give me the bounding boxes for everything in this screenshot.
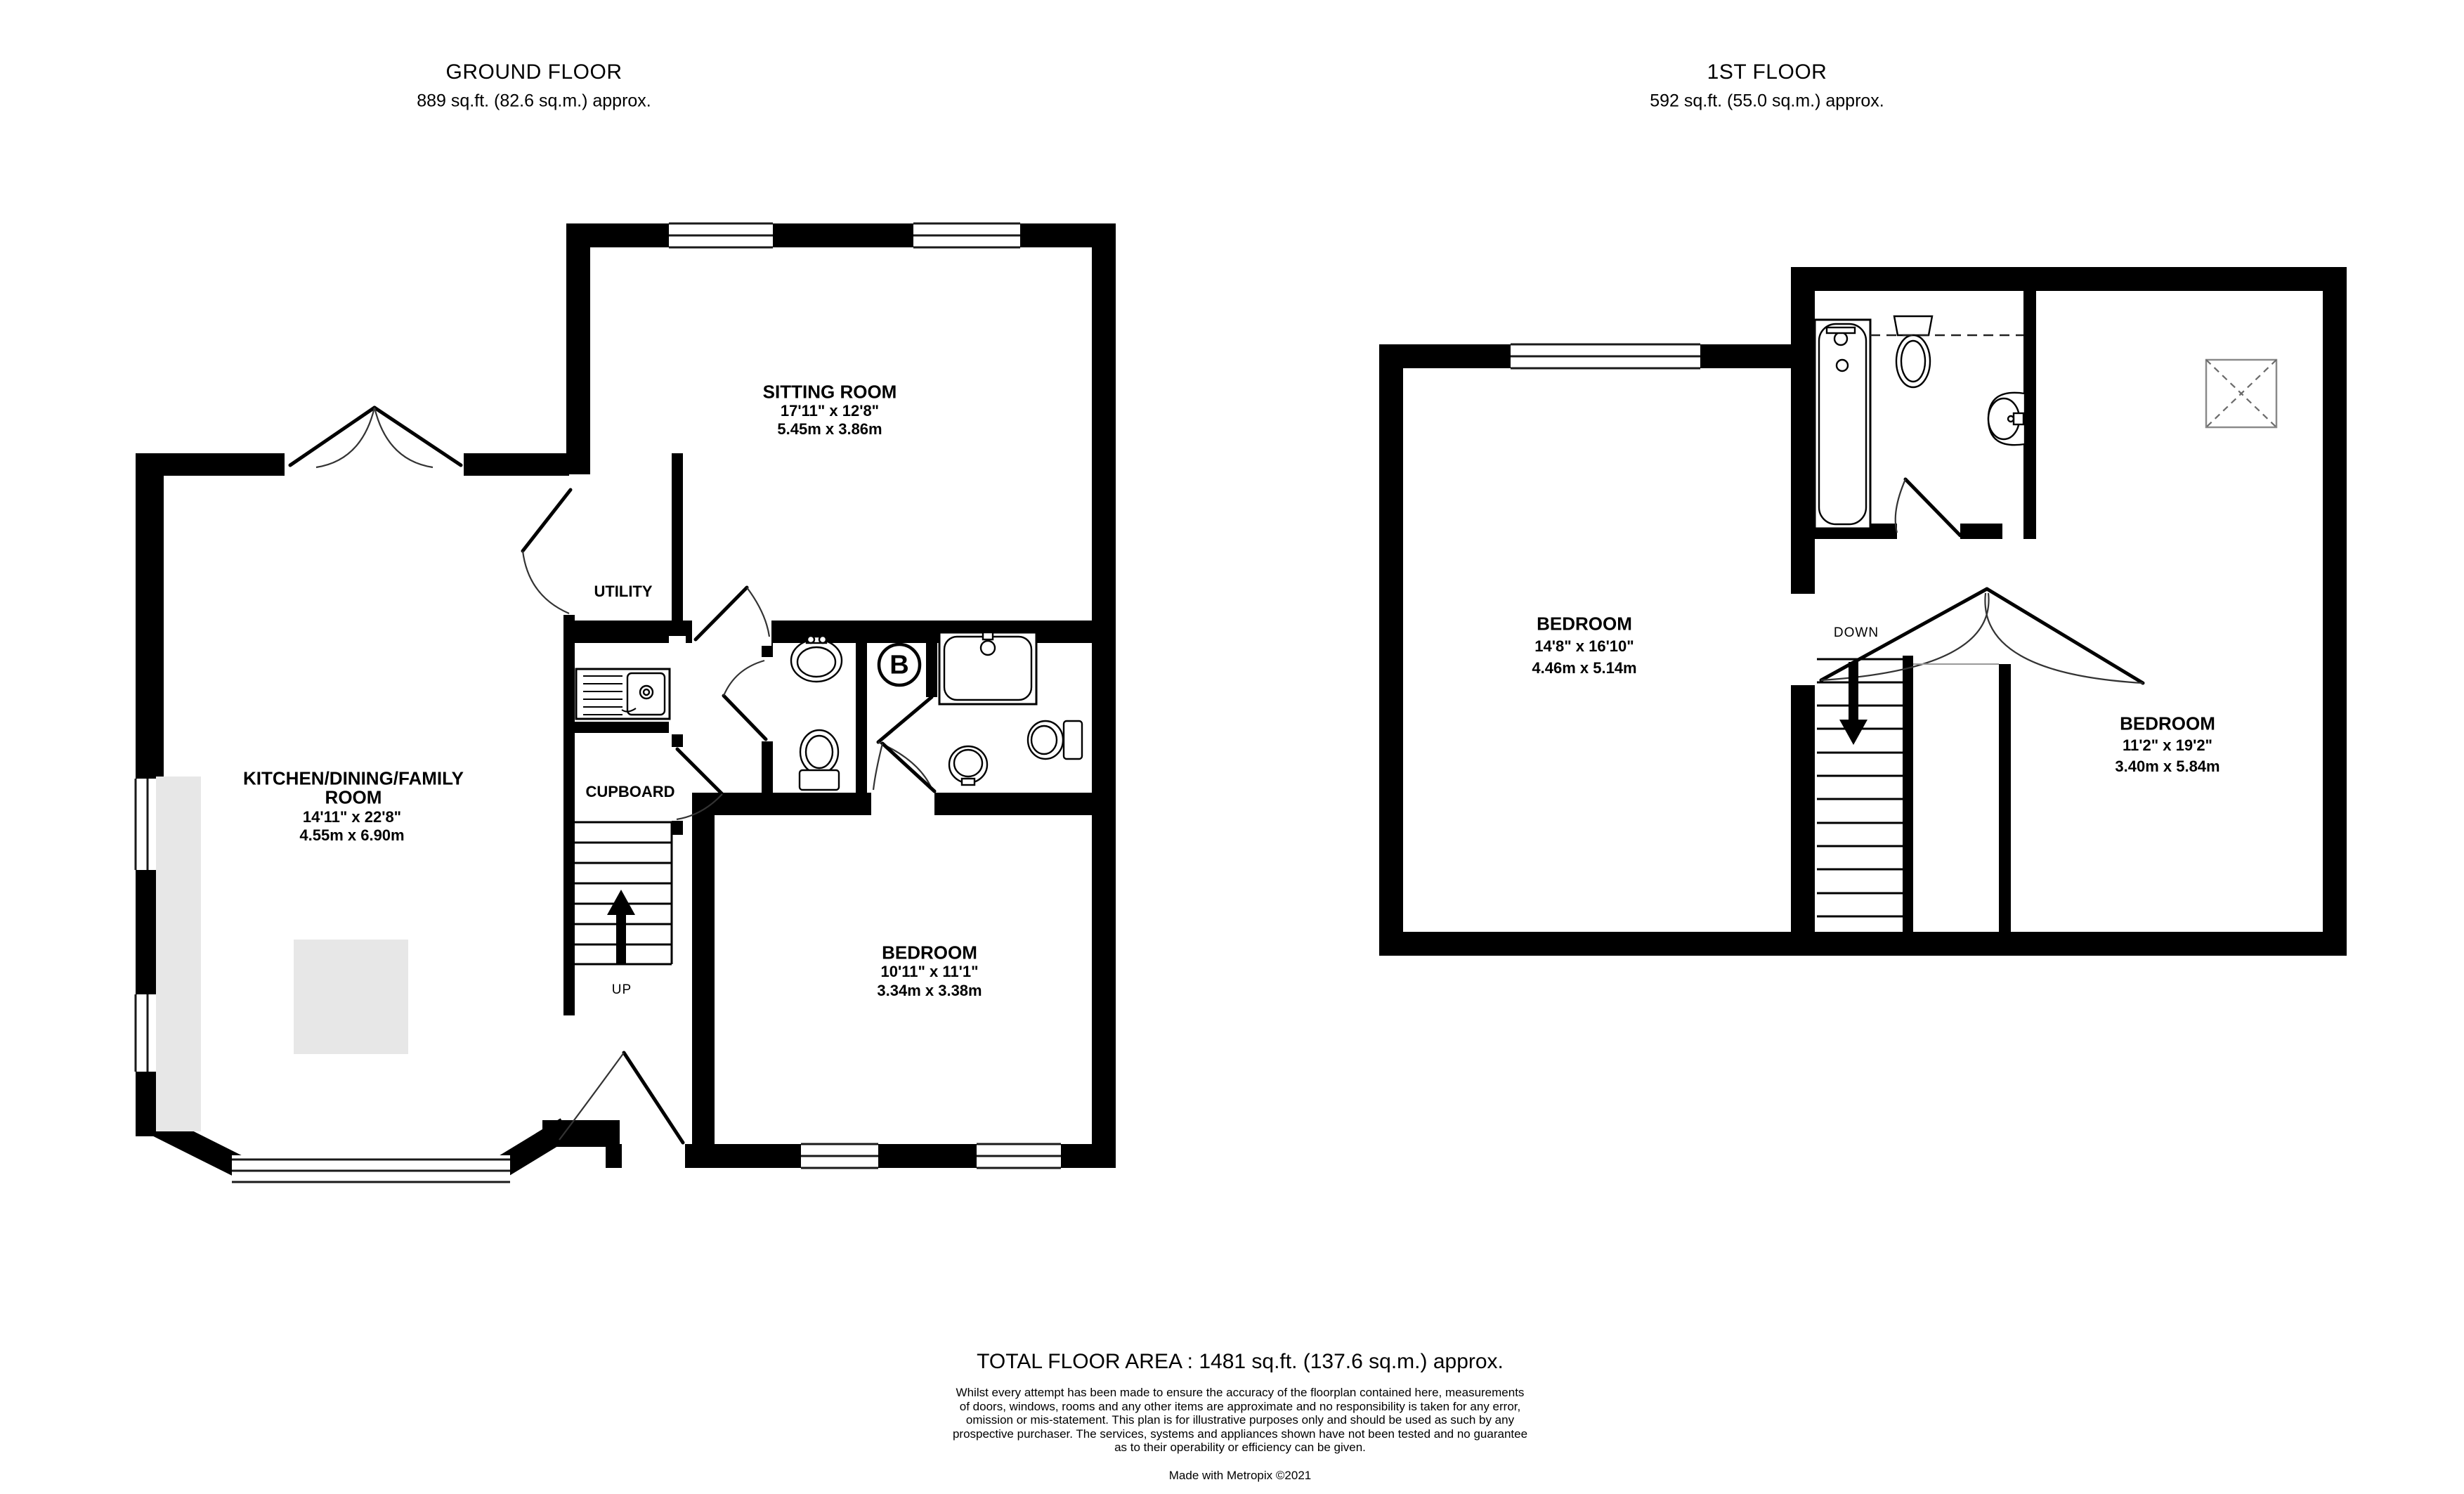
- sitting-room-dims-m: 5.45m x 3.86m: [777, 420, 882, 439]
- window-icon: [669, 219, 773, 252]
- window-icon: [801, 1140, 878, 1172]
- utility-label: UTILITY: [594, 583, 652, 601]
- ff-bedroom1-dims-m: 4.46m x 5.14m: [1532, 659, 1636, 677]
- window-icon: [977, 1140, 1061, 1172]
- utility-sink-icon: [576, 669, 670, 719]
- metropix-credit: Made with Metropix ©2021: [1169, 1469, 1311, 1483]
- ground-floor-subtitle: 889 sq.ft. (82.6 sq.m.) approx.: [417, 91, 651, 112]
- rooflight-icon: [2206, 360, 2276, 427]
- bath-basin-icon: [949, 746, 987, 785]
- sink-icon: [1988, 393, 2025, 445]
- up-label: UP: [612, 982, 632, 998]
- window-icon: [1511, 340, 1700, 372]
- gf-bedroom-dims-m: 3.34m x 3.38m: [877, 982, 982, 1000]
- kitchen-label-line2: ROOM: [325, 787, 382, 809]
- boiler-label: B: [889, 651, 908, 681]
- ff-bedroom1-dims-ft: 14'8" x 16'10": [1534, 637, 1634, 656]
- bathtub-icon: [1815, 320, 1870, 528]
- ff-bedroom2-label: BEDROOM: [2120, 713, 2215, 735]
- kitchen-dims-m: 4.55m x 6.90m: [299, 826, 404, 845]
- toilet-icon: [1894, 316, 1932, 387]
- down-label: DOWN: [1834, 625, 1879, 641]
- wc-toilet-icon: [800, 730, 839, 790]
- floorplan-canvas: [0, 0, 2464, 1494]
- disclaimer-text: Whilst every attempt has been made to en…: [847, 1386, 1634, 1455]
- total-floor-area: TOTAL FLOOR AREA : 1481 sq.ft. (137.6 sq…: [977, 1350, 1504, 1374]
- first-floor-subtitle: 592 sq.ft. (55.0 sq.m.) approx.: [1650, 91, 1884, 112]
- sitting-room-dims-ft: 17'11" x 12'8": [781, 402, 879, 420]
- ff-bedroom1-label: BEDROOM: [1537, 613, 1632, 635]
- first-floor-windows: [1511, 340, 1700, 372]
- bay-window-icon: [232, 1155, 510, 1186]
- stairs-down: [1817, 659, 1903, 940]
- ground-floor-title: GROUND FLOOR: [445, 60, 622, 84]
- bath-toilet-icon: [1028, 721, 1082, 759]
- gf-bedroom-dims-ft: 10'11" x 11'1": [880, 963, 978, 981]
- bathtub-icon: [939, 632, 1036, 704]
- first-floor-title: 1ST FLOOR: [1707, 60, 1827, 84]
- cupboard-label: CUPBOARD: [585, 783, 674, 801]
- sitting-room-label: SITTING ROOM: [763, 382, 897, 403]
- ff-bedroom2-dims-m: 3.40m x 5.84m: [2115, 758, 2219, 776]
- stairs-up: [575, 822, 672, 964]
- gf-bedroom-label: BEDROOM: [882, 942, 977, 964]
- floorplan-page: GROUND FLOOR 889 sq.ft. (82.6 sq.m.) app…: [0, 0, 2464, 1494]
- window-icon: [913, 219, 1020, 252]
- ff-bedroom2-dims-ft: 11'2" x 19'2": [2123, 736, 2212, 755]
- kitchen-dims-ft: 14'11" x 22'8": [303, 808, 401, 826]
